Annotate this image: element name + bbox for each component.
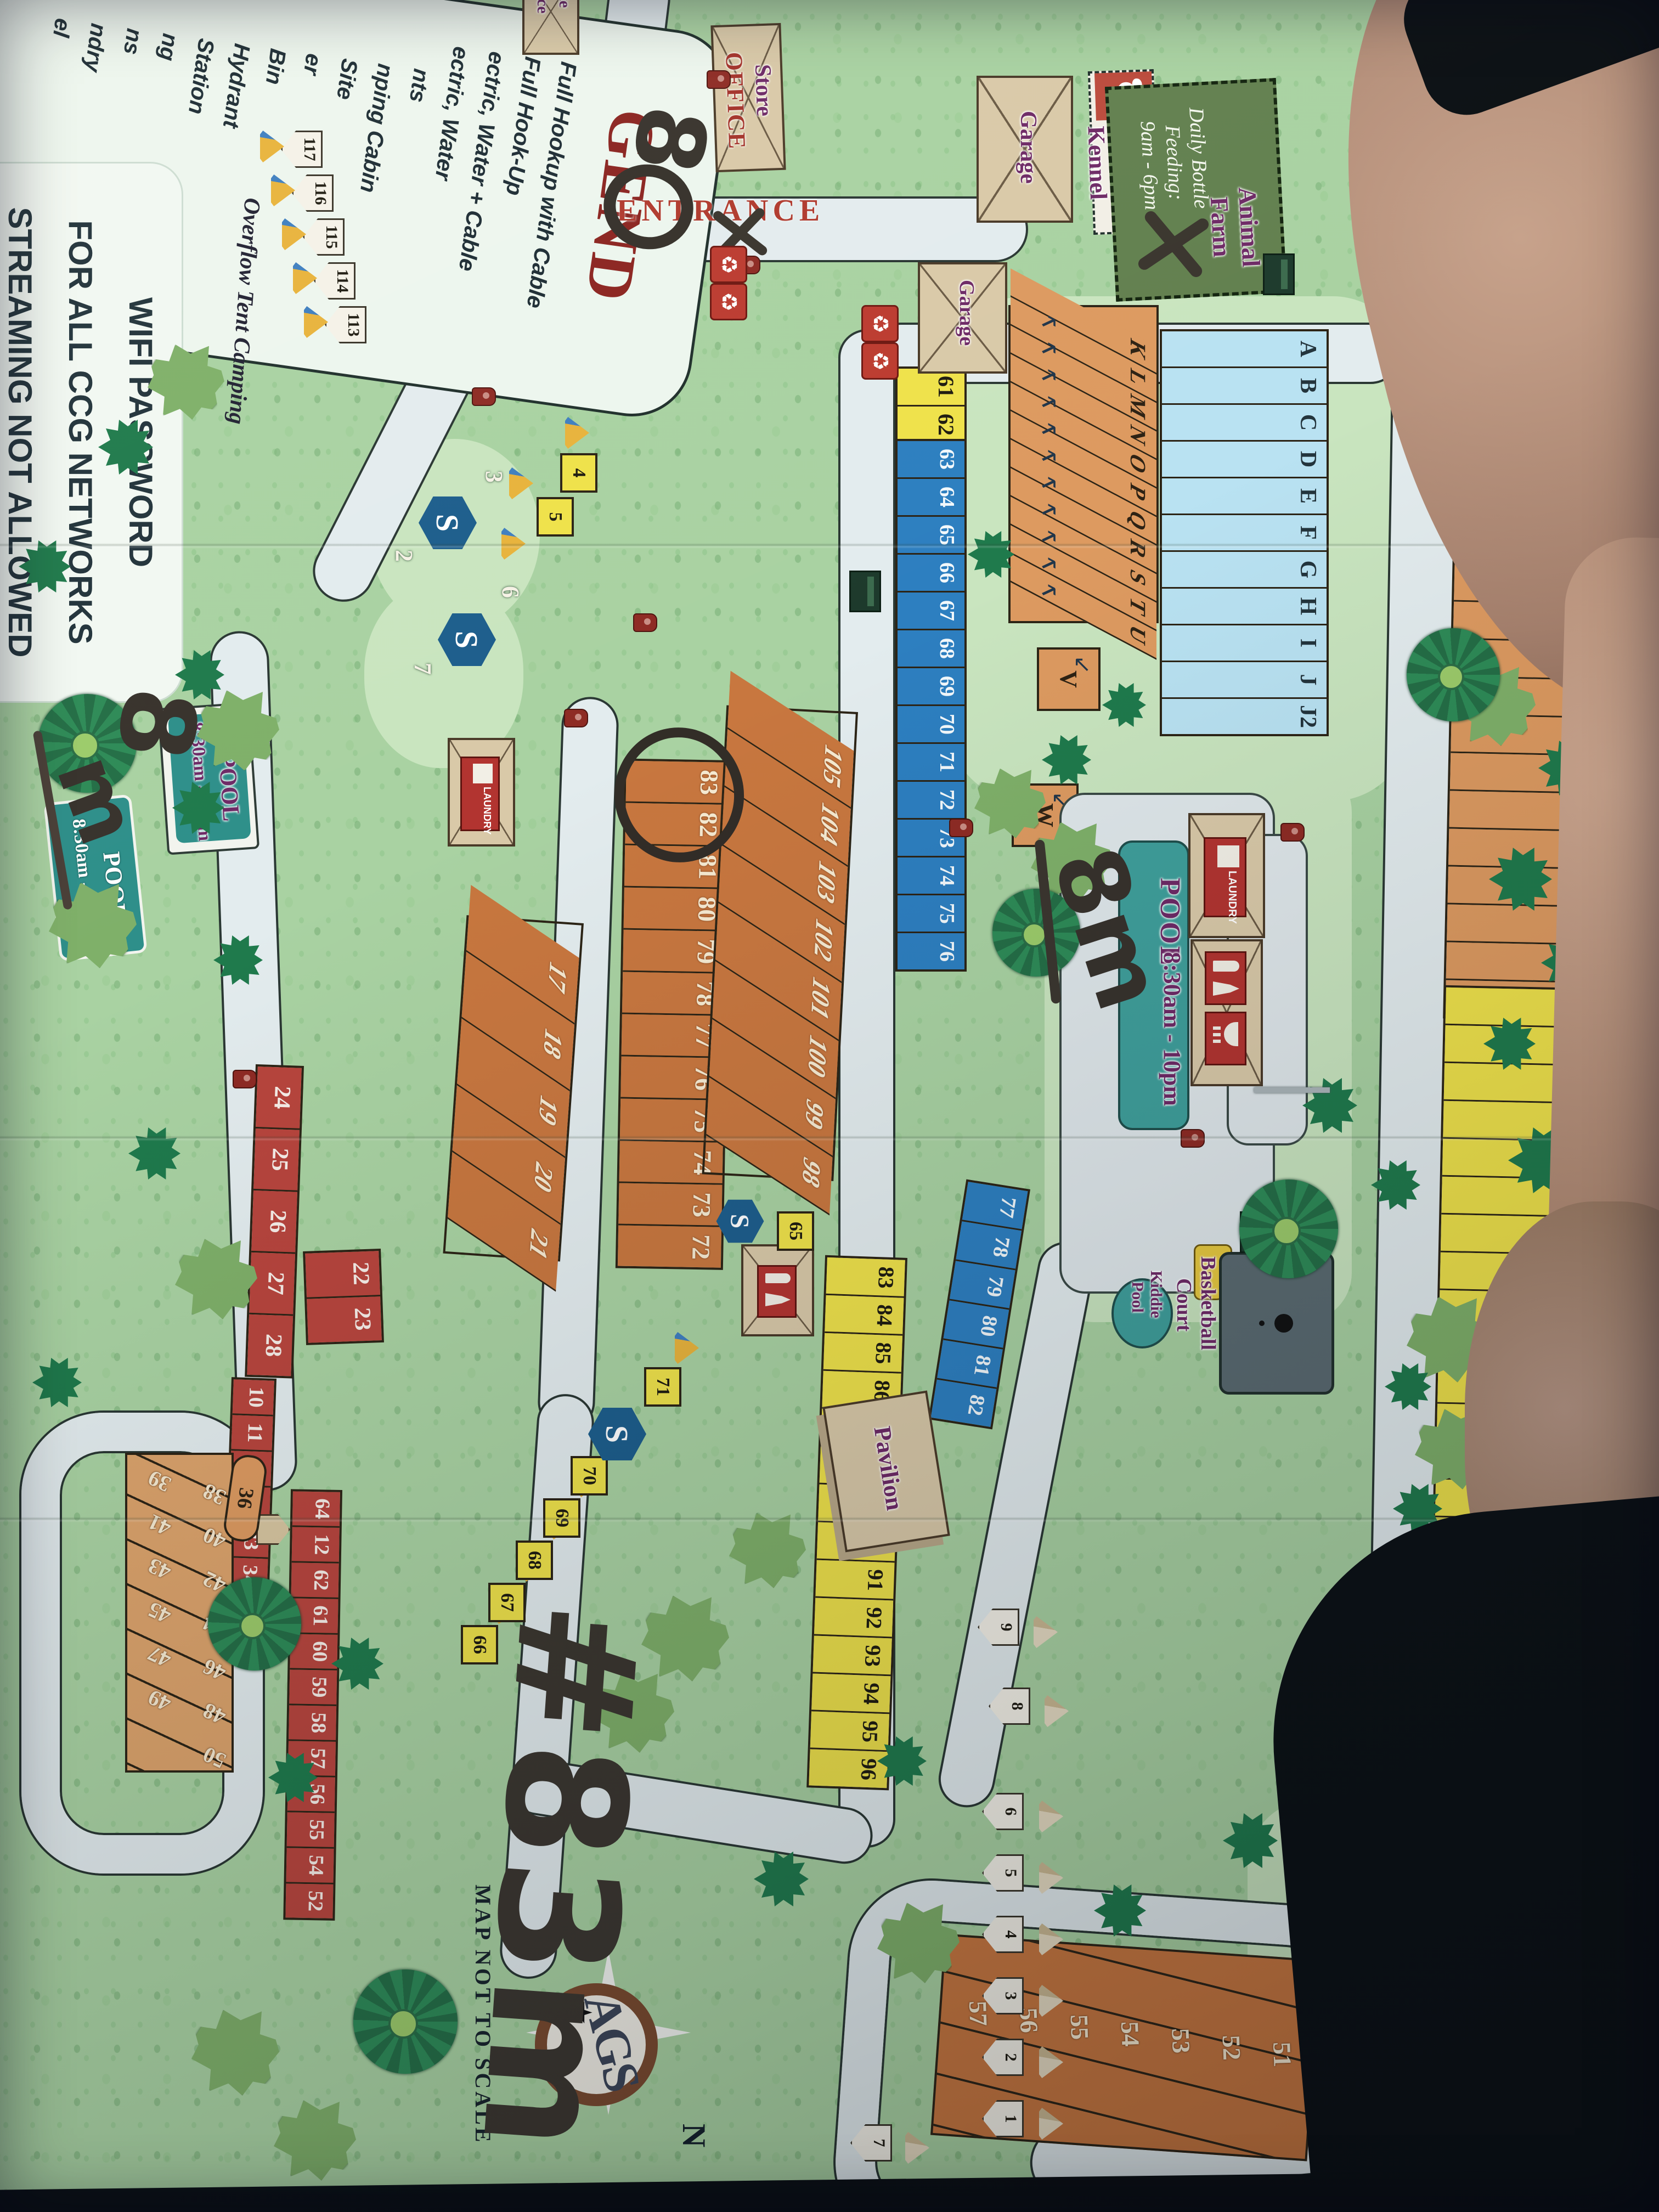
recycle-bin-icon: ♻: [710, 246, 747, 283]
laundry-building: LAUNDRY: [1188, 813, 1265, 938]
site-cell-64: 64: [898, 479, 964, 517]
site-cell-71: 71: [898, 744, 964, 782]
tent-icon: [1039, 1801, 1063, 1832]
site-angle-43: 43: [144, 1553, 174, 1585]
shower-drops: [1213, 1026, 1221, 1046]
laundry-label: LAUNDRY: [1226, 871, 1238, 924]
site-cell-B: B: [1162, 368, 1327, 405]
site-angle-45: 45: [144, 1596, 174, 1629]
site-num-6: 6: [496, 586, 524, 598]
tree-icon: [191, 2008, 279, 2096]
restroom2-building: [741, 1244, 814, 1336]
site-cell-62: 62: [898, 407, 964, 443]
strip-17-21: 1718192021: [443, 915, 584, 1261]
kiddie-pool-label1: Kiddie: [1147, 1271, 1165, 1318]
site-cell-11: 11: [231, 1415, 273, 1452]
site-angle-41: 41: [144, 1509, 174, 1542]
restroom-building: [1190, 939, 1263, 1086]
tent-site-71: 71: [644, 1367, 681, 1407]
tree-icon: [353, 1970, 458, 2074]
site-cell-24: 24: [256, 1066, 302, 1130]
fold-crease: [0, 543, 1659, 549]
fire-hydrant-icon: [949, 819, 973, 837]
woman-icon: [1213, 981, 1239, 996]
site-cell-93: 93: [812, 1635, 891, 1676]
site-51-57-57: 57: [963, 2000, 994, 2027]
farm-x-mark: [1125, 195, 1222, 293]
site-num-2: 2: [390, 550, 418, 562]
washer-icon: [1217, 845, 1239, 867]
gate-label2: ence: [533, 0, 552, 14]
tree-icon: [32, 1358, 82, 1407]
tent-site-6: 6: [982, 1793, 1024, 1830]
tent-site-4: 4: [560, 453, 597, 493]
site-51-57-54: 54: [1115, 2021, 1145, 2047]
basketball-label1: Basketball: [1196, 1256, 1220, 1350]
man-icon: [1213, 961, 1239, 972]
site-cell-79: 79: [623, 930, 726, 974]
tent-site-68: 68: [516, 1541, 553, 1580]
site-cell-55: 55: [287, 1812, 335, 1848]
site-cell-96: 96: [809, 1749, 888, 1788]
pavilion-label: Pavilion: [868, 1424, 909, 1512]
site-cell-I: I: [1162, 625, 1327, 662]
tree-icon: [729, 1511, 806, 1588]
site-cell-80: 80: [624, 888, 727, 932]
dumpster-icon: [849, 571, 881, 612]
site-cell-59: 59: [289, 1669, 337, 1706]
site-cell-62: 62: [291, 1562, 339, 1599]
site-cell-84: 84: [825, 1295, 904, 1336]
tree-icon: [208, 1577, 301, 1671]
shower-sign: [1205, 1012, 1246, 1065]
handwritten-site-code: #83m: [444, 1596, 674, 2159]
fire-hydrant-icon: [233, 1070, 257, 1088]
site-51-57-52: 52: [1217, 2035, 1247, 2061]
garage2-building: Garage: [918, 262, 1007, 374]
tent-icon: [1045, 1695, 1069, 1727]
site-cell-83: 83: [826, 1257, 905, 1298]
tree-icon: [754, 1852, 809, 1906]
site-cell-27: 27: [249, 1252, 295, 1316]
site-cell-J: J: [1162, 662, 1327, 699]
animal-farm-name1: Animal: [1233, 187, 1266, 268]
staple: [1254, 1087, 1330, 1093]
strip-61-62: 6162: [895, 366, 967, 445]
laundry2-sign: LAUNDRY: [460, 757, 500, 831]
site-cell-23: 23: [307, 1296, 382, 1343]
site-num-3: 3: [480, 471, 508, 483]
recycle-bin-icon: ♻: [861, 305, 899, 342]
strip-22-23: 2223: [303, 1249, 384, 1345]
site-cell-66: 66: [898, 555, 964, 592]
photo-of-campground-map: GENDFull Hookup with CableFull Hook-Upec…: [0, 0, 1659, 2212]
laundry2-label: LAUNDRY: [481, 787, 493, 834]
site-cell-92: 92: [814, 1598, 893, 1639]
feed-line1: Daily Bottle: [1184, 107, 1214, 210]
site-angle-47: 47: [144, 1640, 174, 1673]
site-cell-65: 65: [898, 517, 964, 555]
site-cell-61: 61: [898, 369, 964, 407]
strip-letters: ABCDEFGHIJJ2: [1160, 329, 1329, 736]
site-angle-39: 39: [144, 1465, 174, 1498]
site-cell-73: 73: [618, 1183, 722, 1227]
tent-icon: [1034, 1616, 1058, 1648]
site-cell-94: 94: [811, 1673, 890, 1714]
site-cell-10: 10: [233, 1379, 274, 1417]
site-num-7: 7: [409, 663, 437, 675]
wifi-line3: STREAMING NOT ALLOWED: [1, 163, 39, 701]
tree-icon: [1407, 628, 1500, 721]
site-cell-72: 72: [618, 1226, 721, 1268]
site-cell-J2: J2: [1162, 699, 1327, 734]
compass-north: N: [675, 2124, 713, 2147]
restroom2-sign: [757, 1265, 797, 1318]
site-cell-91: 91: [815, 1560, 894, 1601]
tree-icon: [274, 2098, 356, 2181]
site-cell-E: E: [1162, 478, 1327, 515]
tent-site-70: 70: [571, 1456, 608, 1496]
laundry2-building: LAUNDRY: [448, 738, 515, 847]
strip-24-28: 2425262728: [245, 1064, 304, 1379]
site-angle-50: 50: [199, 1741, 229, 1774]
wifi-line2: FOR ALL CCG NETWORKS: [61, 163, 99, 701]
recycle-bin-icon: ♻: [861, 342, 899, 380]
site-cell-67: 67: [898, 592, 964, 630]
restroom-sign: [1205, 951, 1246, 1005]
wifi-box: WIFI PASSWORDFOR ALL CCG NETWORKSSTREAMI…: [0, 162, 183, 703]
site-angle-49: 49: [144, 1684, 174, 1717]
kiddie-pool-label2: Pool: [1128, 1282, 1147, 1313]
tent-icon: [565, 417, 589, 449]
site-cell-D: D: [1162, 442, 1327, 478]
laundry-sign: LAUNDRY: [1204, 837, 1246, 917]
site-cell-26: 26: [251, 1190, 297, 1254]
site-cell-A: A: [1162, 331, 1327, 368]
recycle-bin-icon: ♻: [710, 283, 747, 320]
site-cell-76: 76: [898, 933, 964, 969]
site-cell-69: 69: [898, 668, 964, 706]
tent-site-5: 5: [537, 497, 574, 537]
site-cell-28: 28: [247, 1314, 293, 1376]
site-cell-58: 58: [289, 1705, 336, 1741]
fire-hydrant-icon: [707, 70, 731, 89]
store-label: Store: [749, 64, 777, 116]
site-cell-75: 75: [898, 895, 964, 933]
site-cell-95: 95: [810, 1711, 889, 1752]
site-cell-74: 74: [898, 857, 964, 895]
washer2-icon: [473, 764, 493, 783]
site-cell-52: 52: [285, 1883, 333, 1918]
fold-crease: [0, 1136, 1659, 1141]
tent-icon: [675, 1332, 699, 1364]
shower-icon: [1224, 1022, 1238, 1046]
fire-hydrant-icon: [472, 387, 496, 406]
strip-KU: KLMNOPQRSTU↖↖↖↖↖↖↖↖↖↖↖: [1008, 305, 1159, 623]
basketball-label2: Court: [1172, 1278, 1196, 1331]
man2-icon: [765, 1273, 791, 1283]
fire-hydrant-icon: [564, 709, 588, 727]
site-cell-72: 72: [898, 782, 964, 820]
gate-label1: ate: [555, 0, 574, 8]
strip-63-76: 6364656667686970717273747576: [895, 439, 967, 972]
tree-icon: [1239, 1180, 1338, 1278]
feed-line2: Feeding:: [1160, 125, 1188, 201]
site-angle-48: 48: [199, 1697, 229, 1730]
site-cell-68: 68: [898, 630, 964, 668]
garage2-label: Garage: [955, 280, 979, 346]
site-51-57-53: 53: [1166, 2028, 1196, 2054]
woman2-icon: [765, 1293, 791, 1306]
site-cell-54: 54: [286, 1848, 334, 1884]
site-cell-C: C: [1162, 405, 1327, 442]
site-cell-12: 12: [292, 1527, 340, 1563]
hoop-icon: [1274, 1314, 1293, 1333]
fold-crease: [0, 1517, 1659, 1522]
site-cell-22: 22: [305, 1251, 380, 1299]
strip-52-64: 641262616059585756555452: [283, 1489, 342, 1921]
garage1-label: Garage: [1015, 111, 1041, 184]
shower-hex-3: S: [588, 1408, 646, 1460]
site-cell-85: 85: [823, 1333, 902, 1374]
site-51-57-55: 55: [1065, 2014, 1095, 2040]
site-cell-G: G: [1162, 552, 1327, 589]
dumpster-icon: [1263, 253, 1295, 295]
garage1-building: Garage: [977, 76, 1073, 223]
site-51-57-51: 51: [1267, 2041, 1297, 2068]
gate-building: ateence: [522, 0, 579, 55]
fire-hydrant-icon: [1280, 823, 1305, 842]
site-angle-38: 38: [199, 1478, 229, 1511]
tent-site-65: 65: [777, 1211, 814, 1251]
fire-hydrant-icon: [633, 613, 657, 632]
pavilion-building: Pavilion: [822, 1391, 950, 1553]
site-cell-70: 70: [898, 706, 964, 744]
site-cell-H: H: [1162, 589, 1327, 625]
site-cell-63: 63: [898, 441, 964, 479]
arrow-icon: ↙: [1070, 656, 1095, 674]
